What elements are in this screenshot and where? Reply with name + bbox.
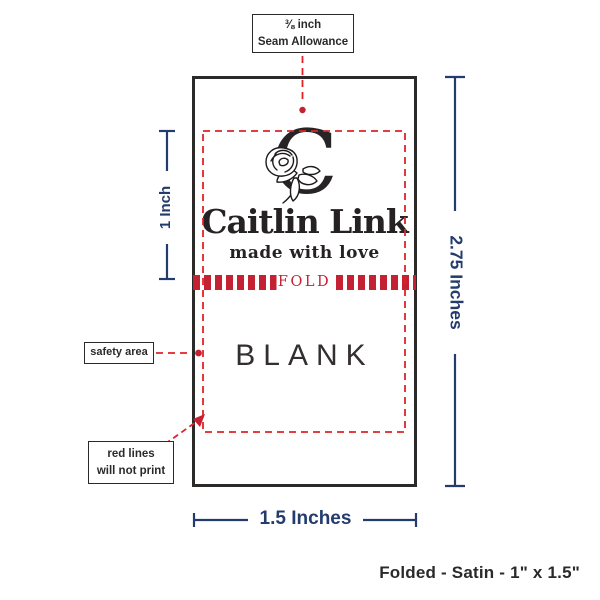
seam-allowance-callout: ⅜ inch Seam Allowance <box>252 14 354 53</box>
red-lines-line2: will not print <box>97 463 165 479</box>
label-spec-diagram: C Caitlin Link made with love FOLD BLANK <box>0 0 600 600</box>
total-height-text: 2.75 Inches <box>446 235 467 329</box>
seam-allowance-line2: Seam Allowance <box>258 34 348 50</box>
width-text: 1.5 Inches <box>260 508 352 530</box>
seam-allowance-line1: ⅜ inch <box>285 17 321 33</box>
label-outline: C Caitlin Link made with love FOLD BLANK <box>192 76 417 487</box>
brand-name: Caitlin Link <box>195 205 414 238</box>
red-lines-callout: red lines will not print <box>88 441 174 484</box>
width-label: 1.5 Inches <box>248 504 363 533</box>
blank-text: BLANK <box>195 341 414 371</box>
safety-area-callout: safety area <box>84 342 154 364</box>
fold-height-label: 1 Inch <box>152 171 179 244</box>
safety-area-text: safety area <box>90 345 148 360</box>
flower-icon <box>263 145 323 207</box>
product-caption: Folded - Satin - 1" x 1.5" <box>320 563 580 583</box>
fold-height-text: 1 Inch <box>157 186 174 229</box>
total-height-label: 2.75 Inches <box>440 211 472 354</box>
fold-label: FOLD <box>276 271 333 293</box>
tagline: made with love <box>195 245 414 262</box>
red-lines-line1: red lines <box>107 446 154 462</box>
